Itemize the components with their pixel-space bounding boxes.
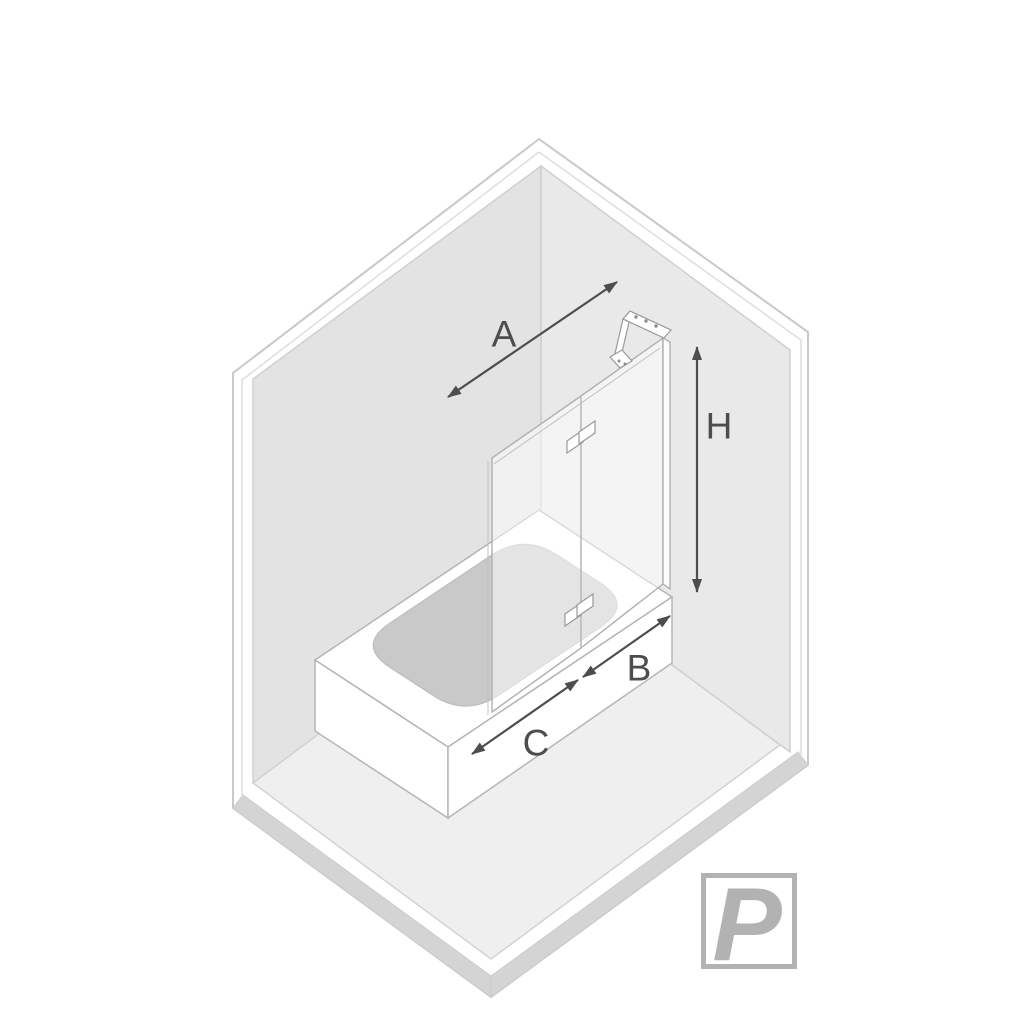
- clamp-screw: [618, 360, 621, 363]
- isometric-drawing: A H B C P: [0, 0, 1024, 1024]
- dimension-label-b: B: [627, 648, 652, 689]
- glass-right-edge-profile: [663, 338, 670, 589]
- bracket-screw: [634, 315, 637, 318]
- bracket-screw: [644, 319, 647, 322]
- dimension-label-c: C: [523, 723, 550, 764]
- bracket-screw: [654, 324, 657, 327]
- dimension-label-a: A: [492, 314, 517, 355]
- brand-logo-letter: P: [712, 867, 782, 983]
- brand-logo: P: [704, 867, 795, 983]
- diagram-canvas: A H B C P: [0, 0, 1024, 1024]
- dimension-label-h: H: [706, 406, 733, 447]
- clamp-screw: [624, 363, 627, 366]
